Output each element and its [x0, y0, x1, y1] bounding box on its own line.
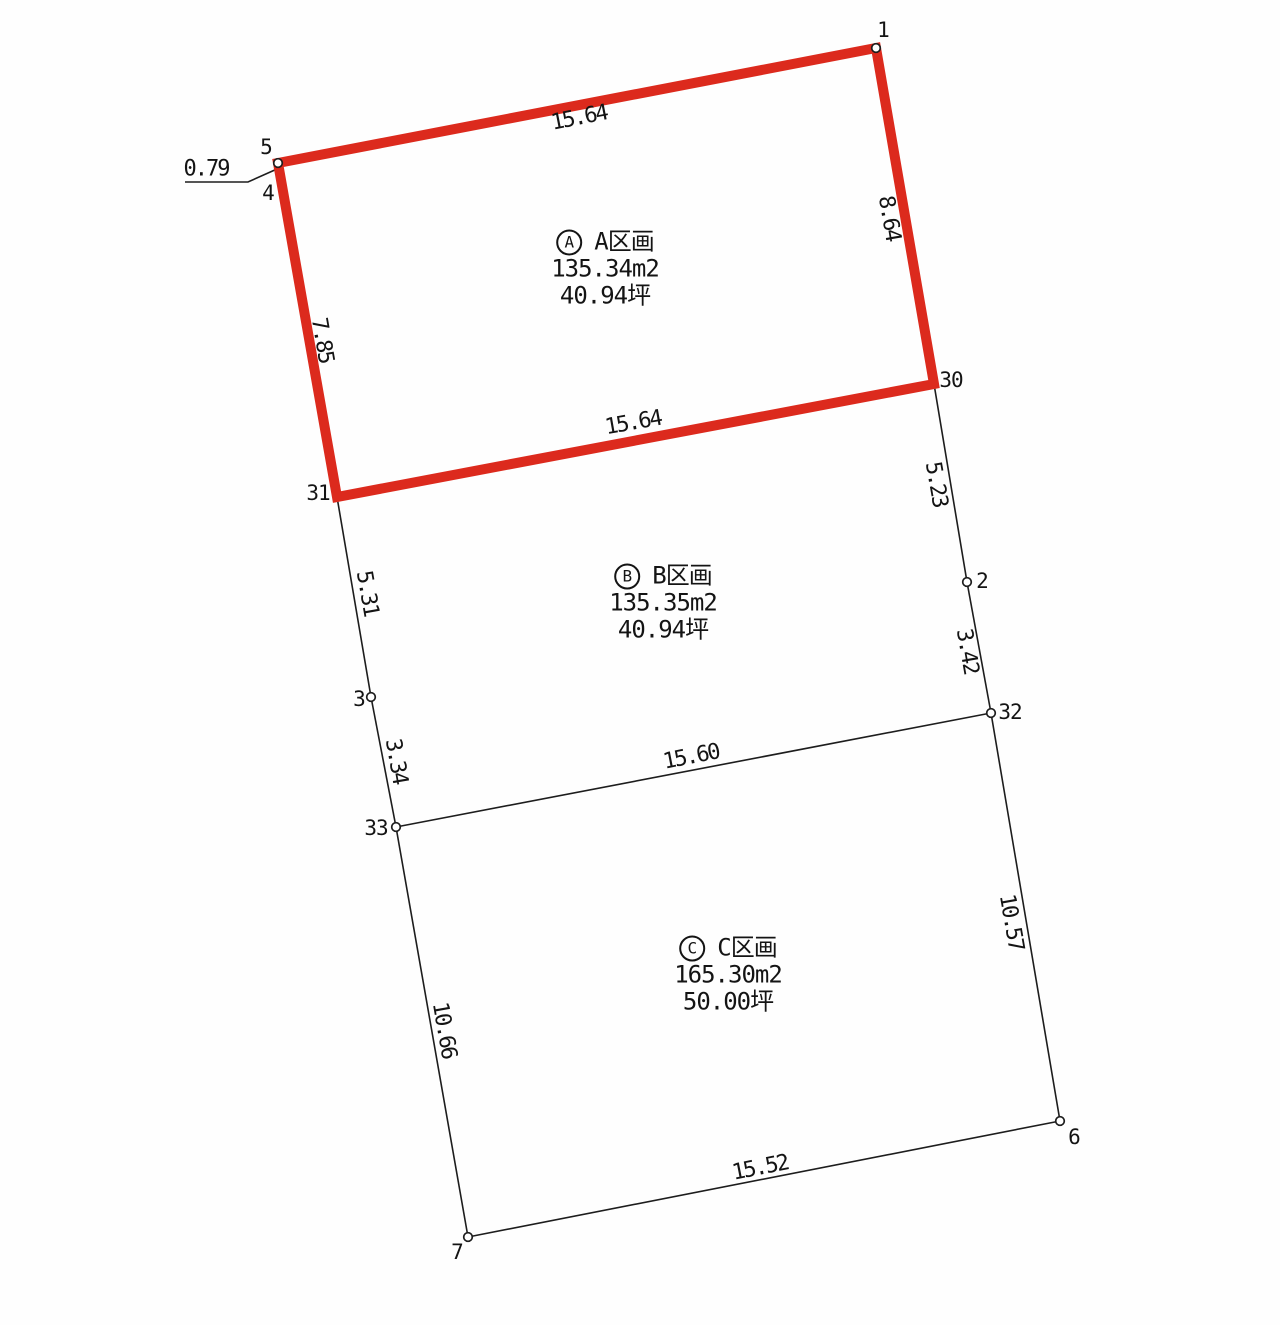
- point-label-1: 1: [877, 18, 889, 42]
- parcel-b-label: B B区画 135.35m2 40.94坪: [609, 563, 717, 644]
- boundary-line-33-32: [396, 713, 991, 827]
- point-marker-3: [367, 693, 376, 702]
- parcel-a-area-tsubo: 40.94坪: [551, 283, 659, 310]
- parcel-c-label: C C区画 165.30m2 50.00坪: [674, 935, 782, 1016]
- measurement-label-15.60: 15.60: [661, 739, 722, 774]
- parcel-a-label: A A区画 135.34m2 40.94坪: [551, 229, 659, 310]
- point-label-2: 2: [976, 569, 988, 593]
- parcel-b-area-m2: 135.35m2: [609, 590, 717, 617]
- point-label-31: 31: [306, 481, 330, 505]
- measurement-label-15.52: 15.52: [730, 1150, 791, 1185]
- measurement-label-3.34: 3.34: [380, 737, 413, 787]
- measurement-label-10.66: 10.66: [427, 1000, 462, 1060]
- point-marker-33: [392, 823, 401, 832]
- parcel-b-name: B区画: [652, 563, 711, 590]
- parcel-b-badge: B: [614, 563, 640, 589]
- survey-diagram: 1543031233233670.7915.648.647.8515.645.2…: [0, 0, 1280, 1325]
- parcel-b-title-row: B B区画: [609, 563, 717, 590]
- point-marker-5: [274, 159, 283, 168]
- point-marker-1: [872, 44, 881, 53]
- point-marker-2: [963, 578, 972, 587]
- point-label-3: 3: [353, 687, 365, 711]
- point-label-6: 6: [1068, 1125, 1080, 1149]
- parcel-a-area-m2: 135.34m2: [551, 256, 659, 283]
- parcel-b-area-tsubo: 40.94坪: [609, 617, 717, 644]
- point-label-5: 5: [260, 135, 272, 159]
- parcel-a-name: A区画: [594, 229, 653, 256]
- point-label-4: 4: [262, 181, 274, 205]
- parcel-c-area-m2: 165.30m2: [674, 962, 782, 989]
- parcel-c-badge: C: [679, 935, 705, 961]
- parcel-c-name: C区画: [717, 935, 776, 962]
- point-marker-7: [464, 1233, 473, 1242]
- parcel-a-title-row: A A区画: [551, 229, 659, 256]
- parcel-c-title-row: C C区画: [674, 935, 782, 962]
- point-label-33: 33: [364, 816, 388, 840]
- point-marker-32: [987, 709, 996, 718]
- point-label-7: 7: [451, 1240, 463, 1264]
- parcel-c-area-tsubo: 50.00坪: [674, 989, 782, 1016]
- measurement-label-3.42: 3.42: [951, 627, 984, 676]
- land-survey-page: 1543031233233670.7915.648.647.8515.645.2…: [0, 0, 1280, 1325]
- point-label-32: 32: [998, 700, 1021, 724]
- point-label-30: 30: [939, 368, 963, 392]
- point-marker-6: [1056, 1117, 1065, 1126]
- parcel-a-badge: A: [556, 229, 582, 255]
- measurement-label-0.79: 0.79: [184, 157, 230, 182]
